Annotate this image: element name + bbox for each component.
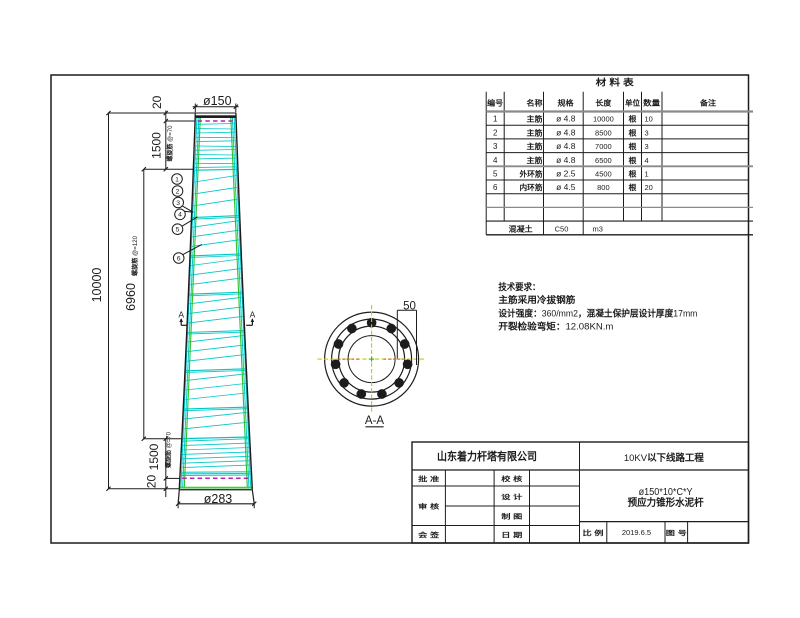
svg-text:4: 4 [178, 212, 182, 219]
svg-text:ø150*10*C*Y: ø150*10*C*Y [639, 487, 693, 498]
svg-text:ø 2.5: ø 2.5 [556, 169, 576, 179]
svg-text:开裂检验弯矩：12.08KN.m: 开裂检验弯矩：12.08KN.m [498, 320, 613, 331]
svg-text:根: 根 [629, 182, 638, 192]
svg-text:根: 根 [629, 127, 638, 137]
svg-text:螺旋筋 @=70: 螺旋筋 @=70 [166, 125, 174, 162]
svg-text:根: 根 [629, 114, 638, 124]
svg-text:A: A [250, 309, 256, 319]
svg-text:图 号: 图 号 [666, 528, 688, 537]
svg-text:主筋: 主筋 [527, 141, 544, 151]
svg-text:ø283: ø283 [204, 492, 233, 506]
svg-text:3: 3 [645, 142, 649, 151]
svg-text:ø 4.8: ø 4.8 [556, 155, 576, 165]
svg-text:技术要求：: 技术要求： [498, 281, 540, 292]
svg-text:根: 根 [629, 169, 638, 179]
svg-text:1500: 1500 [149, 132, 163, 159]
svg-text:7000: 7000 [595, 142, 612, 151]
svg-text:2019.6.5: 2019.6.5 [622, 528, 651, 537]
svg-text:编号: 编号 [487, 97, 504, 107]
svg-text:m3: m3 [593, 225, 603, 234]
svg-text:4: 4 [645, 156, 649, 165]
svg-text:ø150: ø150 [203, 94, 232, 108]
svg-text:单位: 单位 [625, 97, 640, 107]
svg-text:名称: 名称 [527, 97, 544, 107]
svg-text:混凝土: 混凝土 [509, 224, 534, 234]
svg-text:备注: 备注 [699, 97, 717, 107]
svg-text:4500: 4500 [595, 170, 612, 179]
svg-text:1: 1 [493, 115, 498, 124]
svg-text:8500: 8500 [595, 128, 612, 137]
svg-text:制 图: 制 图 [501, 512, 523, 521]
svg-text:会 签: 会 签 [418, 530, 440, 539]
svg-text:主筋: 主筋 [527, 127, 544, 137]
svg-text:20: 20 [645, 183, 653, 192]
svg-text:主筋: 主筋 [527, 114, 544, 124]
svg-text:1: 1 [645, 170, 649, 179]
svg-text:2: 2 [176, 188, 180, 195]
svg-text:10KV以下线路工程: 10KV以下线路工程 [624, 452, 704, 464]
svg-text:材 料 表: 材 料 表 [595, 77, 635, 88]
svg-text:3: 3 [645, 128, 649, 137]
svg-text:5: 5 [493, 170, 498, 179]
svg-text:螺旋筋 @=120: 螺旋筋 @=120 [131, 235, 139, 276]
svg-text:设 计: 设 计 [501, 492, 523, 501]
svg-text:预应力锥形水泥杆: 预应力锥形水泥杆 [628, 496, 704, 509]
svg-text:日 期: 日 期 [501, 530, 523, 539]
svg-text:1: 1 [175, 176, 179, 183]
svg-text:6: 6 [177, 255, 181, 262]
svg-text:10000: 10000 [593, 115, 614, 124]
svg-text:20: 20 [150, 95, 164, 109]
svg-text:设计强度：360/mm2，混凝土保护层设计厚度17mm: 设计强度：360/mm2，混凝土保护层设计厚度17mm [498, 307, 697, 318]
svg-text:3: 3 [493, 142, 498, 151]
svg-text:批 准: 批 准 [418, 474, 440, 483]
svg-text:4: 4 [493, 156, 498, 165]
svg-text:长度: 长度 [595, 97, 612, 107]
svg-text:6500: 6500 [595, 156, 612, 165]
svg-text:审 核: 审 核 [418, 502, 440, 511]
svg-text:A: A [178, 309, 184, 319]
svg-text:10: 10 [645, 115, 653, 124]
svg-text:6: 6 [493, 183, 498, 192]
svg-text:3: 3 [176, 200, 180, 207]
svg-text:外环筋: 外环筋 [520, 169, 544, 179]
svg-text:6960: 6960 [124, 283, 138, 311]
svg-text:主筋: 主筋 [527, 155, 544, 165]
svg-text:根: 根 [629, 141, 638, 151]
svg-text:内环筋: 内环筋 [520, 182, 544, 192]
svg-text:根: 根 [629, 155, 638, 165]
svg-text:主筋采用冷拔钢筋: 主筋采用冷拔钢筋 [498, 294, 575, 305]
svg-text:20: 20 [145, 475, 159, 489]
svg-text:10000: 10000 [90, 268, 104, 303]
svg-text:ø 4.8: ø 4.8 [556, 141, 576, 151]
svg-text:2: 2 [493, 128, 498, 137]
svg-text:5: 5 [176, 227, 180, 234]
svg-text:规格: 规格 [558, 97, 575, 107]
svg-text:C50: C50 [555, 225, 569, 234]
svg-text:校 核: 校 核 [501, 474, 523, 483]
svg-text:山东着力杆塔有限公司: 山东着力杆塔有限公司 [437, 449, 537, 463]
svg-text:ø 4.5: ø 4.5 [556, 182, 576, 192]
svg-text:800: 800 [597, 183, 610, 192]
svg-text:1500: 1500 [147, 443, 161, 470]
svg-text:螺旋筋 @=70: 螺旋筋 @=70 [165, 431, 173, 468]
svg-text:数量: 数量 [643, 97, 661, 107]
svg-text:比 例: 比 例 [583, 528, 605, 537]
svg-text:ø 4.8: ø 4.8 [556, 127, 576, 137]
svg-text:A-A: A-A [365, 415, 385, 427]
svg-text:ø 4.8: ø 4.8 [556, 114, 576, 124]
